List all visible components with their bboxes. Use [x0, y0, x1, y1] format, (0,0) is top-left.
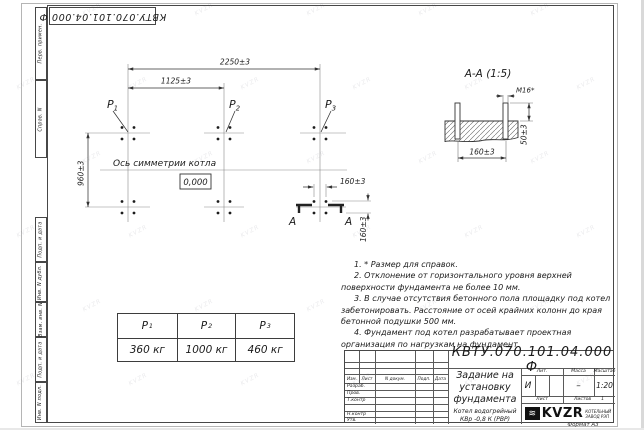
- notes-block: 1. * Размер для справок. 2. Отклонение о…: [341, 259, 615, 350]
- load-table-header-row: Р1 Р2 Р3: [118, 314, 294, 339]
- point-label-p2: Р2: [229, 98, 241, 113]
- mass-header: Масса: [563, 368, 594, 375]
- scale-value: 1:20: [594, 375, 615, 396]
- dim-160-section-label: 160±3: [469, 148, 495, 157]
- dim-160h-label: 160±3: [340, 177, 366, 186]
- anchor-bolt-right: [503, 103, 508, 139]
- col-header-podp: Подп.: [415, 375, 433, 383]
- load-value-p1: 360 кг: [118, 339, 177, 361]
- point-label-p3: Р3: [325, 98, 336, 113]
- mass-value: –: [563, 375, 594, 396]
- dim-160v-label: 160±3: [359, 216, 368, 242]
- section-view: А-А (1:5) М16* 50±3 160±3: [445, 68, 535, 162]
- dim-960-label: 960±3: [77, 160, 86, 186]
- sheet-label: Лист: [521, 396, 563, 403]
- level-mark-value: 0,000: [183, 178, 207, 188]
- load-table: Р1 Р2 Р3 360 кг 1000 кг 460 кг: [117, 313, 295, 362]
- point-leaders: [113, 111, 331, 132]
- point-label-p1: Р1: [107, 98, 118, 113]
- section-letter-left: А: [288, 216, 296, 228]
- col-header-ndoc: N докум.: [375, 375, 415, 383]
- section-title: А-А (1:5): [464, 68, 512, 80]
- kvzr-logo-icon: ≋: [525, 407, 540, 420]
- sign-row-prov: Пров.: [345, 390, 377, 397]
- sign-row-tkontr: Т.контр: [345, 397, 377, 404]
- note-3: 3. В случае отсутствия бетонного пола пл…: [341, 293, 615, 327]
- sign-row-utv: Утв.: [345, 417, 377, 424]
- sheets-cell: Листов 1: [563, 396, 615, 403]
- sign-row-blank: [345, 404, 377, 411]
- note-2: 2. Отклонение от горизонтального уровня …: [341, 270, 615, 293]
- section-letter-right: А: [344, 216, 352, 228]
- format-label: Формат А3: [548, 422, 618, 428]
- load-table-header-p3: Р3: [235, 314, 294, 338]
- kvzr-logo-subtext: КОТЕЛЬНЫЙ ЗАВОД РЭП: [585, 409, 611, 419]
- load-value-p2: 1000 кг: [177, 339, 236, 361]
- col-header-izm: Изм.: [345, 375, 359, 383]
- sheets-label: Листов: [574, 397, 591, 402]
- plan-view: 2250±3 1125±3 960±3 160±3 160±3 Ось симм…: [77, 58, 372, 243]
- note-1: 1. * Размер для справок.: [341, 259, 615, 270]
- title-block: КВТУ.070.101.04.000 Ф Задание на установ…: [344, 350, 614, 423]
- sheets-value: 1: [601, 397, 604, 402]
- axis-of-symmetry-label: Ось симметрии котла: [113, 159, 216, 169]
- dim-1125-label: 1125±3: [161, 77, 191, 86]
- plan-centerlines: [85, 64, 371, 222]
- company-logo-cell: ≋ KVZR КОТЕЛЬНЫЙ ЗАВОД РЭП: [521, 403, 615, 424]
- titleblock-product: Котел водогрейный КВр -0,8 К (РВР): [449, 407, 521, 424]
- scale-header: Масштаб: [594, 368, 615, 375]
- dim-2250-label: 2250±3: [220, 58, 250, 67]
- lit-value: И: [521, 375, 535, 396]
- titleblock-title: Задание на установку фундамента: [449, 368, 521, 407]
- bolt-callout-m16: М16*: [516, 87, 535, 95]
- kvzr-logo-text: KVZR: [542, 406, 584, 421]
- lit-header: Лит.: [521, 368, 563, 375]
- col-header-data: Дата: [433, 375, 448, 383]
- drawing-sheet: Перв. примен. Справ. N Подп. и дата Инв.…: [0, 0, 644, 430]
- load-table-value-row: 360 кг 1000 кг 460 кг: [118, 339, 294, 361]
- anchor-bolt-left: [455, 103, 460, 139]
- load-table-header-p2: Р2: [177, 314, 236, 338]
- sign-row-razrab: Разраб.: [345, 383, 377, 390]
- col-header-list: Лист: [359, 375, 375, 383]
- load-value-p3: 460 кг: [235, 339, 294, 361]
- titleblock-doc-number: КВТУ.070.101.04.000 Ф: [449, 351, 615, 368]
- dim-50-label: 50±3: [520, 124, 529, 145]
- load-table-header-p1: Р1: [118, 314, 177, 338]
